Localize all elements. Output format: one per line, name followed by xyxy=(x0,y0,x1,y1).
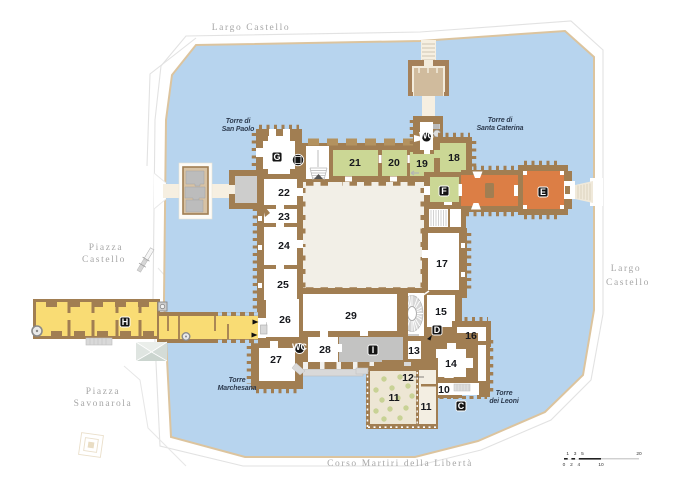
svg-text:Torre: Torre xyxy=(496,390,513,397)
svg-text:Savonarola: Savonarola xyxy=(74,399,133,409)
svg-text:21: 21 xyxy=(349,157,361,169)
svg-text:Torre di: Torre di xyxy=(226,118,252,125)
svg-text:WC: WC xyxy=(419,130,434,140)
svg-text:G: G xyxy=(273,152,280,162)
svg-text:0: 0 xyxy=(563,462,566,468)
svg-text:2: 2 xyxy=(570,462,573,468)
svg-text:19: 19 xyxy=(416,158,428,170)
svg-text:22: 22 xyxy=(278,187,290,199)
svg-text:10: 10 xyxy=(438,384,450,396)
svg-text:Piazza: Piazza xyxy=(89,243,123,253)
svg-text:13: 13 xyxy=(408,345,420,357)
svg-text:Castello: Castello xyxy=(606,278,650,288)
svg-text:Torre: Torre xyxy=(229,377,246,384)
svg-text:Torre di: Torre di xyxy=(488,117,514,124)
svg-text:H: H xyxy=(122,317,129,327)
svg-text:Marchesana: Marchesana xyxy=(218,385,257,392)
svg-text:11: 11 xyxy=(388,392,399,404)
svg-text:Piazza: Piazza xyxy=(86,387,120,397)
svg-text:WC: WC xyxy=(292,342,307,352)
svg-text:16: 16 xyxy=(465,330,477,342)
svg-text:E: E xyxy=(540,187,546,197)
svg-text:29: 29 xyxy=(345,310,357,322)
svg-text:12: 12 xyxy=(402,372,414,384)
svg-text:27: 27 xyxy=(270,354,282,366)
svg-text:Largo Castello: Largo Castello xyxy=(212,23,290,33)
svg-text:I: I xyxy=(372,345,375,355)
svg-text:15: 15 xyxy=(435,306,447,318)
svg-text:17: 17 xyxy=(436,258,448,270)
svg-text:26: 26 xyxy=(279,314,291,326)
svg-text:4: 4 xyxy=(577,462,580,468)
svg-text:D: D xyxy=(434,325,441,335)
svg-text:23: 23 xyxy=(278,211,290,223)
svg-text:10: 10 xyxy=(598,462,604,468)
svg-text:dei Leoni: dei Leoni xyxy=(489,398,520,405)
svg-text:11: 11 xyxy=(420,401,431,413)
svg-text:18: 18 xyxy=(448,152,460,164)
svg-text:F: F xyxy=(441,186,447,196)
svg-text:Castello: Castello xyxy=(82,255,126,265)
svg-text:Santa Caterina: Santa Caterina xyxy=(477,125,524,132)
svg-text:San Paolo: San Paolo xyxy=(222,126,254,133)
svg-text:24: 24 xyxy=(278,240,290,252)
svg-text:14: 14 xyxy=(445,358,457,370)
svg-text:3: 3 xyxy=(574,451,577,457)
svg-text:20: 20 xyxy=(388,157,400,169)
svg-text:20: 20 xyxy=(636,451,642,457)
svg-text:25: 25 xyxy=(277,279,289,291)
svg-text:C: C xyxy=(458,401,465,411)
svg-text:Corso Martiri della Libertà: Corso Martiri della Libertà xyxy=(327,459,473,469)
svg-text:28: 28 xyxy=(319,344,331,356)
svg-text:Largo: Largo xyxy=(611,264,642,274)
svg-text:5: 5 xyxy=(581,451,584,457)
svg-text:1: 1 xyxy=(566,451,569,457)
